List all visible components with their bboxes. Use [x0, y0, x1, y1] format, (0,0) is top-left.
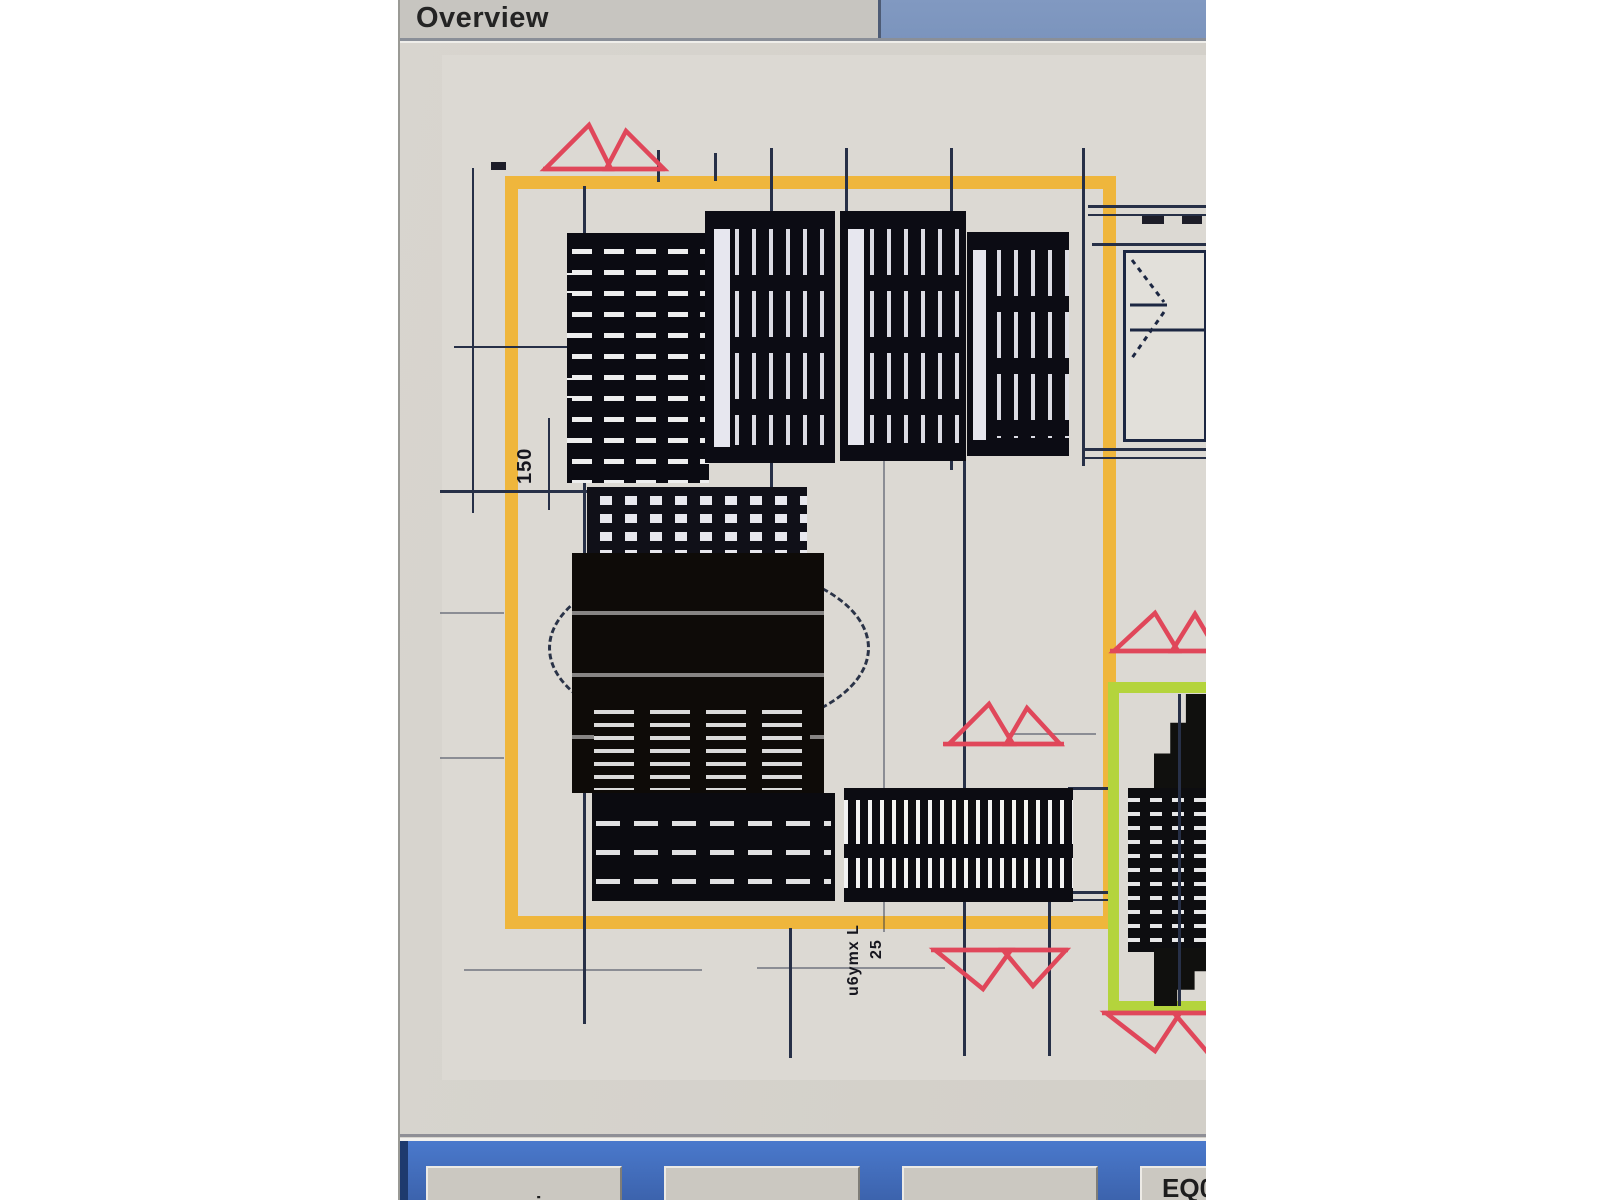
bottom-bar-edge: [400, 1141, 408, 1200]
blueprint-line: [440, 757, 504, 759]
nav-button-overview[interactable]: overview: [426, 1166, 622, 1200]
photo-of-screen: Overview: [0, 0, 1600, 1200]
nav-button-2[interactable]: [664, 1166, 860, 1200]
rack-aisle: [973, 250, 986, 440]
blueprint-line: [1178, 694, 1181, 1006]
blueprint-line: [1048, 884, 1051, 1056]
blueprint-line: [440, 612, 504, 614]
blueprint-line: [1070, 891, 1110, 894]
machine-striped-section: [594, 710, 810, 790]
hmi-screen: Overview: [398, 0, 1206, 1200]
part-label: u6ymx L: [845, 896, 863, 996]
blueprint-line: [1092, 243, 1206, 246]
blueprint-line: [464, 969, 702, 971]
rack-block-top-left: [567, 233, 709, 483]
bottom-separator: [400, 1134, 1206, 1137]
blueprint-line: [963, 455, 966, 1056]
blueprint-line: [454, 346, 572, 348]
blueprint-line: [657, 150, 660, 182]
blueprint-line: [714, 153, 717, 181]
blueprint-line: [1085, 448, 1206, 451]
blueprint-line: [440, 490, 588, 493]
rack-aisle: [714, 229, 730, 447]
blueprint-line: [1082, 148, 1085, 466]
conveyor-tab: [1142, 216, 1164, 224]
title-bar: Overview: [400, 0, 878, 40]
nav-button-3[interactable]: [902, 1166, 1098, 1200]
stage: Overview: [398, 0, 1206, 1200]
blueprint-line: [1008, 733, 1096, 735]
blueprint-line: [1088, 205, 1206, 208]
conveyor-tab: [1182, 216, 1202, 224]
rack-aisle: [848, 229, 864, 445]
rack-block-bottom-right: [844, 788, 1073, 902]
corner-mark: [491, 162, 506, 170]
dimension-label-25: 25: [868, 915, 886, 959]
nav-button-label: EQ0: [1162, 1173, 1206, 1200]
green-zone-rack: [1128, 788, 1206, 952]
dimension-label-150: 150: [514, 430, 537, 484]
title-separator-highlight: [400, 41, 1206, 43]
rack-block-bottom-left: [592, 793, 835, 901]
blueprint-line: [1085, 457, 1206, 459]
blueprint-line: [548, 418, 550, 510]
nav-button-label: overview: [428, 1192, 620, 1200]
dock-structure: [1123, 250, 1206, 442]
blueprint-line: [472, 168, 474, 513]
blueprint-line: [1070, 899, 1110, 901]
nav-button-eq[interactable]: EQ0: [1140, 1166, 1206, 1200]
blueprint-line: [1068, 787, 1110, 790]
page-title: Overview: [400, 0, 878, 35]
title-bar-blue-panel: [878, 0, 1206, 40]
blueprint-line: [789, 928, 792, 1058]
